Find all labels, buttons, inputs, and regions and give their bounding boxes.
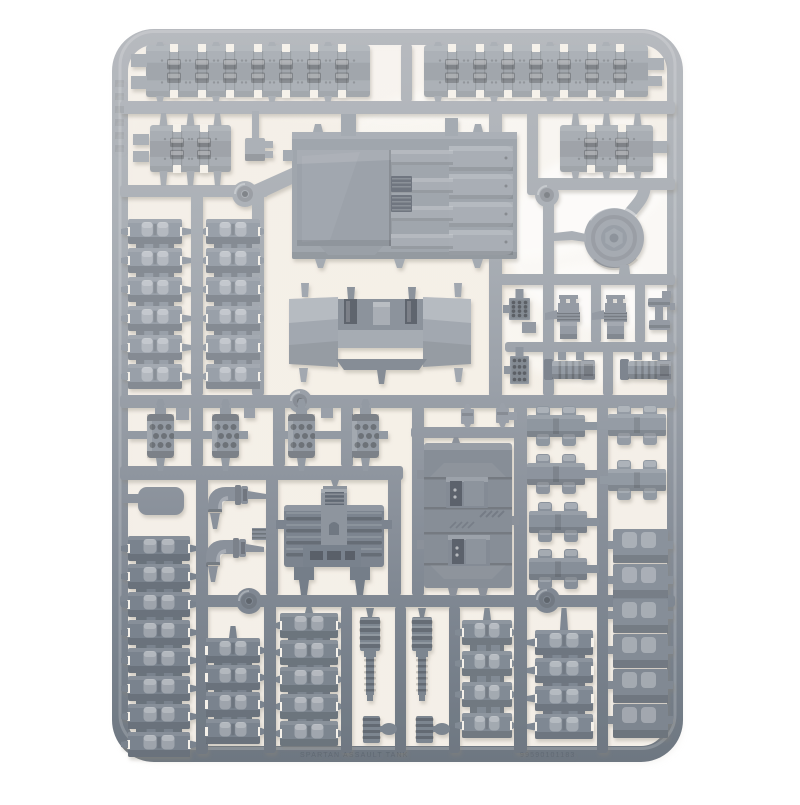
svg-text:SPARTAN ASSAULT TANK: SPARTAN ASSAULT TANK: [300, 752, 409, 759]
svg-text:99590101183: 99590101183: [520, 752, 576, 759]
